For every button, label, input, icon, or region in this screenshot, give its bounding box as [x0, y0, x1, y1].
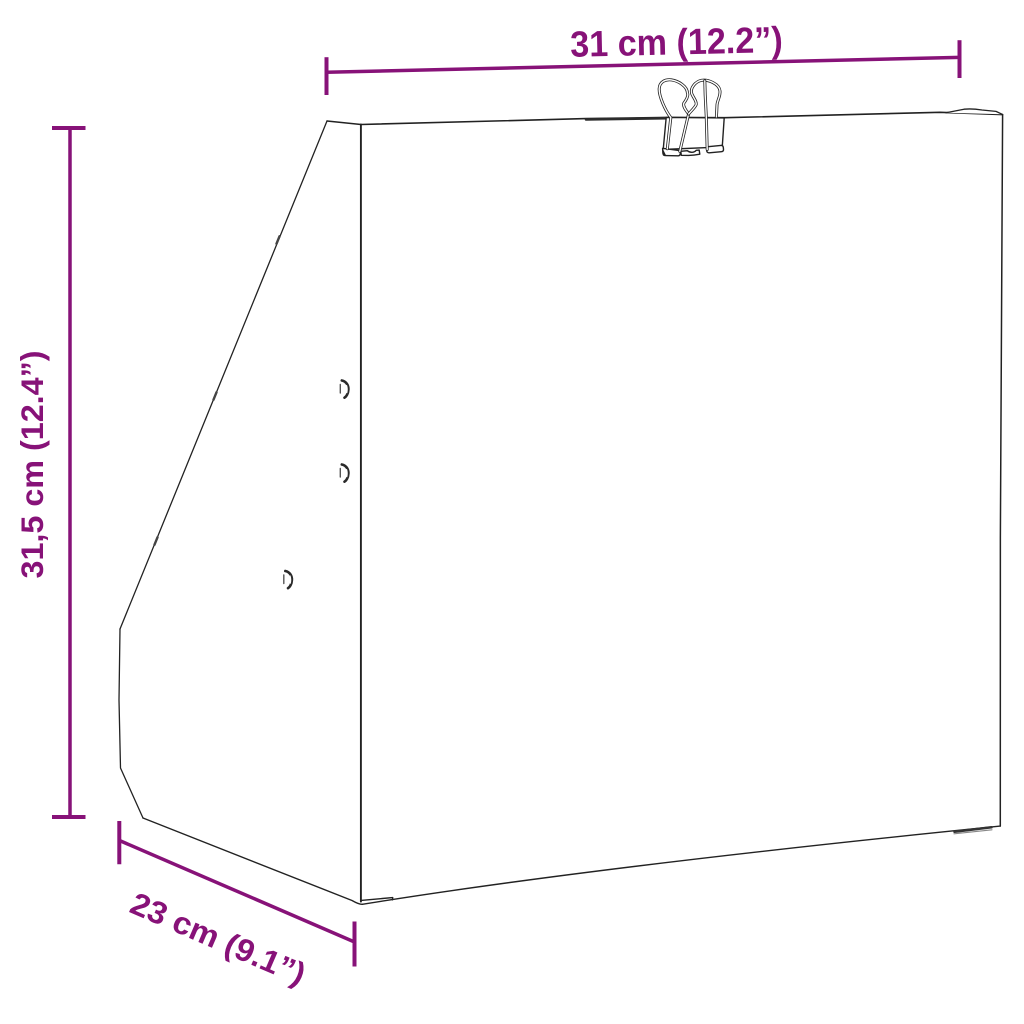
- svg-text:31,5 cm (12.4”): 31,5 cm (12.4”): [14, 351, 50, 579]
- svg-text:31 cm (12.2”): 31 cm (12.2”): [570, 19, 783, 65]
